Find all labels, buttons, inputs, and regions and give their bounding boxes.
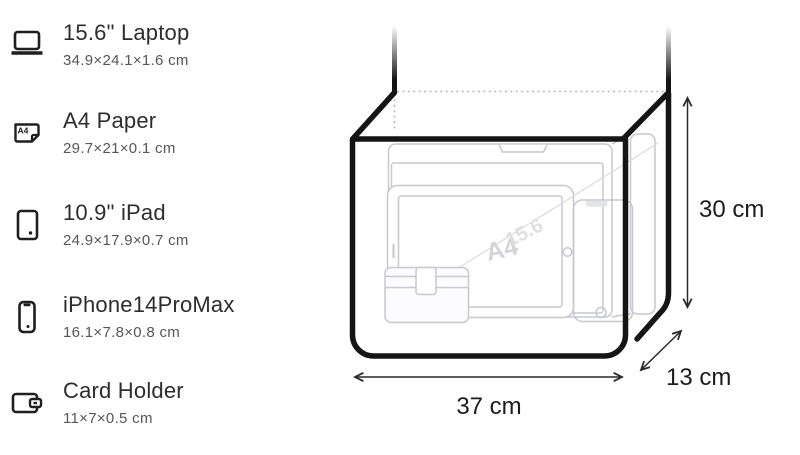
item-dimensions: 29.7×21×0.1 cm: [63, 140, 176, 158]
bag-top-left-depth-edge: [354, 93, 395, 139]
bag-contents-ghost: A4 15.6: [385, 134, 658, 323]
item-dimensions: 11×7×0.5 cm: [63, 410, 184, 428]
depth-dimension-label: 13 cm: [666, 364, 731, 391]
width-dimension-label: 37 cm: [456, 393, 521, 420]
item-title: Card Holder: [63, 378, 184, 404]
a4-badge-text: A4: [18, 126, 29, 136]
item-title: 10.9" iPad: [63, 200, 189, 226]
a4-paper-icon: A4: [8, 114, 46, 152]
ipad-icon: [8, 206, 46, 244]
height-dimension-label: 30 cm: [699, 196, 764, 223]
list-item-a4-paper: A4 A4 Paper 29.7×21×0.1 cm: [8, 108, 176, 158]
card-holder-icon: [8, 384, 46, 422]
item-title: A4 Paper: [63, 108, 176, 134]
list-item-laptop: 15.6" Laptop 34.9×24.1×1.6 cm: [8, 20, 189, 70]
card-holder-tab-ghost: [416, 268, 436, 295]
item-dimensions: 16.1×7.8×0.8 cm: [63, 324, 235, 342]
item-title: iPhone14ProMax: [63, 292, 235, 318]
item-title: 15.6" Laptop: [63, 20, 189, 46]
bag-back-edges-dotted: [395, 92, 666, 132]
item-dimensions: 24.9×17.9×0.7 cm: [63, 232, 189, 250]
list-item-ipad: 10.9" iPad 24.9×17.9×0.7 cm: [8, 200, 189, 250]
laptop-icon: [8, 26, 46, 64]
iphone-notch-ghost: [586, 201, 608, 207]
fits-items-list: 15.6" Laptop 34.9×24.1×1.6 cm A4 A4 Pape…: [0, 0, 330, 455]
bag-size-infographic: 15.6" Laptop 34.9×24.1×1.6 cm A4 A4 Pape…: [0, 0, 800, 455]
bag-top-right-depth-edge: [624, 93, 668, 138]
item-dimensions: 34.9×24.1×1.6 cm: [63, 52, 189, 70]
list-item-iphone: iPhone14ProMax 16.1×7.8×0.8 cm: [8, 292, 235, 342]
list-item-card-holder: Card Holder 11×7×0.5 cm: [8, 378, 184, 428]
iphone-icon: [8, 298, 46, 336]
bag-diagram: A4 15.6 30: [330, 0, 800, 455]
laptop-hinge-notch: [499, 145, 547, 152]
laptop-depth-ghost: [631, 134, 656, 314]
